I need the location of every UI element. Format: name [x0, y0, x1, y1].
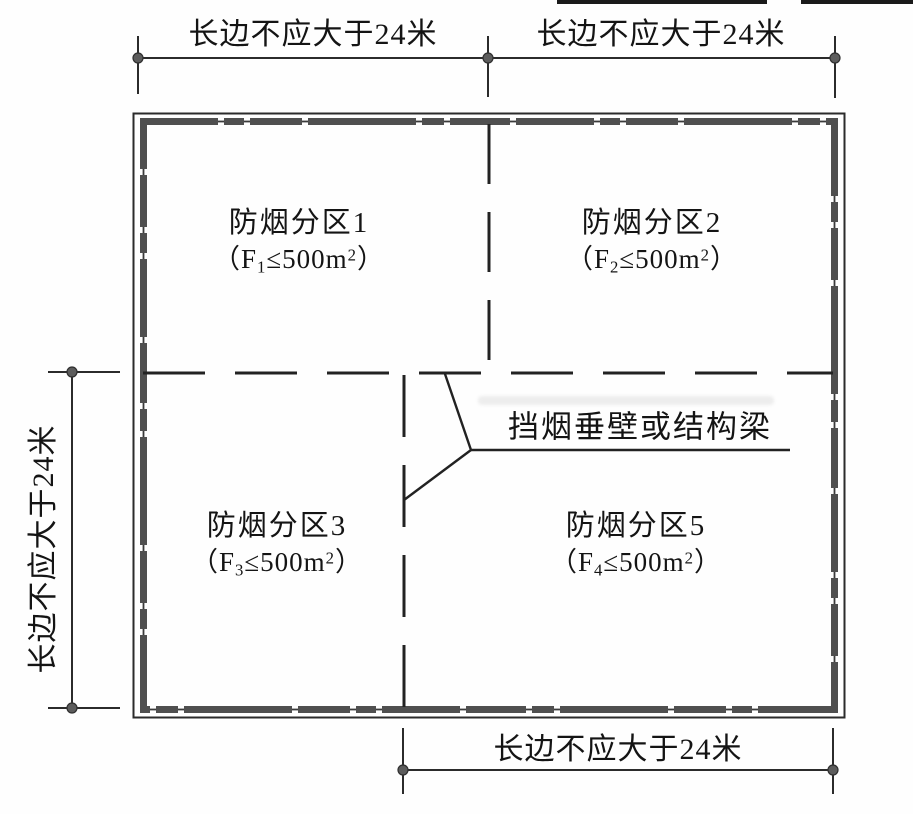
dim-top-dot-right	[830, 53, 840, 63]
leader-lower-arm	[404, 450, 471, 500]
dim-top-dot-middle	[483, 53, 493, 63]
smoke-zone-diagram: 长边不应大于24米 长边不应大于24米 长边不应大于24米 长边不应大于24米 …	[0, 0, 913, 814]
zone-1-area-close: ）	[357, 244, 385, 274]
zone-5-area: （F4≤500m2）	[550, 546, 722, 582]
zone-3-area-superscript: 2	[326, 548, 335, 567]
dim-left-dot-top	[67, 367, 77, 377]
dimension-label-top-left: 长边不应大于24米	[189, 9, 438, 53]
zone-5-area-superscript: 2	[685, 548, 694, 567]
zone-2-area: （F2≤500m2）	[566, 243, 738, 279]
zone-label-1: 防烟分区1 （F1≤500m2）	[213, 206, 385, 278]
dimension-label-bottom: 长边不应大于24米	[494, 724, 743, 768]
zone-label-2: 防烟分区2 （F2≤500m2）	[566, 206, 738, 278]
zone-3-area-value: ≤500m	[244, 547, 325, 577]
zone-2-area-superscript: 2	[701, 245, 710, 264]
zone-5-title: 防烟分区5	[550, 509, 722, 544]
zone-2-area-value: ≤500m	[619, 244, 700, 274]
zone-3-area-subscript: 3	[235, 560, 244, 579]
callout-label: 挡烟垂壁或结构梁	[508, 402, 772, 447]
zone-label-5: 防烟分区5 （F4≤500m2）	[550, 509, 722, 581]
zone-1-area-prefix: （F	[213, 244, 257, 274]
zone-5-area-subscript: 4	[594, 560, 603, 579]
dimension-label-left: 长边不应大于24米	[18, 425, 62, 674]
dim-bottom-dot-right	[828, 765, 838, 775]
zone-1-area-value: ≤500m	[266, 244, 347, 274]
zone-2-area-prefix: （F	[566, 244, 610, 274]
zone-5-area-value: ≤500m	[603, 547, 684, 577]
dimension-label-top-right: 长边不应大于24米	[537, 9, 786, 53]
dim-bottom-dot-left	[398, 765, 408, 775]
dim-left-dot-bottom	[67, 703, 77, 713]
floor-plan-linework	[0, 0, 913, 814]
zone-1-title: 防烟分区1	[213, 206, 385, 241]
zone-1-area-superscript: 2	[348, 245, 357, 264]
zone-5-area-close: ）	[694, 547, 722, 577]
zone-2-area-subscript: 2	[610, 257, 619, 276]
zone-label-3: 防烟分区3 （F3≤500m2）	[191, 509, 363, 581]
zone-1-area-subscript: 1	[257, 257, 266, 276]
dim-top-dot-left	[133, 53, 143, 63]
zone-3-title: 防烟分区3	[191, 509, 363, 544]
zone-2-area-close: ）	[710, 244, 738, 274]
zone-5-area-prefix: （F	[550, 547, 594, 577]
zone-3-area-close: ）	[335, 547, 363, 577]
zone-3-area: （F3≤500m2）	[191, 546, 363, 582]
zone-1-area: （F1≤500m2）	[213, 243, 385, 279]
zone-2-title: 防烟分区2	[566, 206, 738, 241]
zone-3-area-prefix: （F	[191, 547, 235, 577]
